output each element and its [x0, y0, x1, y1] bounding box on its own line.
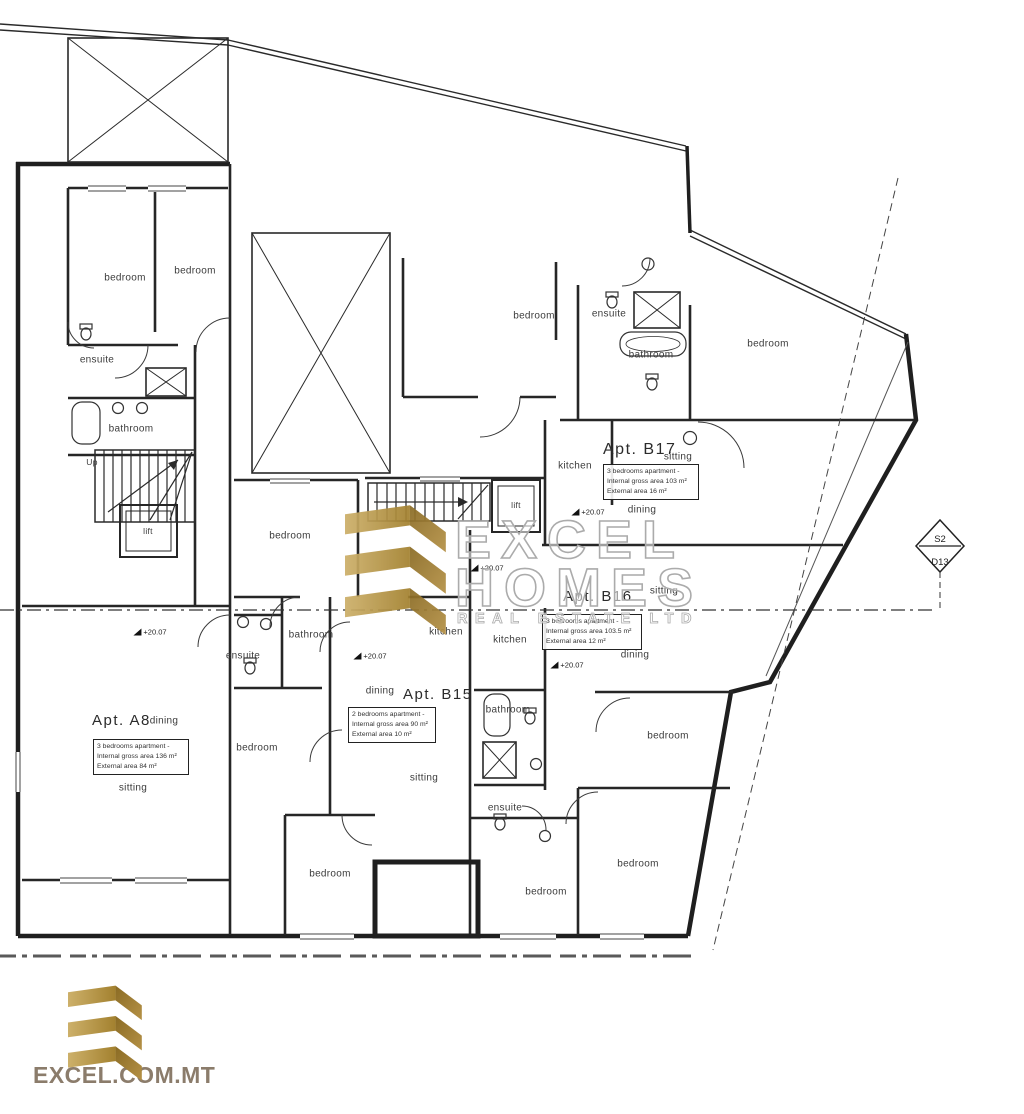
- level-marker: +20.07: [133, 628, 166, 637]
- room-label-dining: dining: [366, 686, 395, 697]
- apartment-title-b17: Apt. B17: [603, 441, 676, 459]
- room-label-ensuite: ensuite: [80, 355, 114, 366]
- info-line: External area 12 m²: [546, 637, 638, 647]
- info-line: 3 bedrooms apartment -: [97, 742, 185, 752]
- info-line: External area 84 m²: [97, 762, 185, 772]
- room-label-bathroom: bathroom: [109, 424, 154, 435]
- room-label-bedroom: bedroom: [513, 311, 555, 322]
- level-marker: +20.07: [550, 661, 583, 670]
- info-line: Internal gross area 136 m²: [97, 752, 185, 762]
- level-flag-icon: [470, 565, 478, 572]
- room-label-kitchen: kitchen: [493, 635, 527, 646]
- room-label-ensuite: ensuite: [488, 803, 522, 814]
- level-value: +20.07: [143, 628, 166, 637]
- room-label-bedroom: bedroom: [617, 859, 659, 870]
- info-line: Internal gross area 90 m²: [352, 720, 432, 730]
- apartment-title-a8: Apt. A8: [92, 712, 151, 729]
- website-link[interactable]: EXCEL.COM.MT: [33, 1062, 215, 1089]
- info-line: 2 bedrooms apartment -: [352, 710, 432, 720]
- room-label-bedroom: bedroom: [525, 887, 567, 898]
- apartment-title-b16: Apt. B16: [563, 588, 633, 605]
- room-label-sitting: sitting: [650, 586, 678, 597]
- room-label-lift: lift: [511, 500, 521, 510]
- room-label-bathroom: bathroom: [629, 350, 674, 361]
- room-label-bedroom: bedroom: [647, 731, 689, 742]
- apartment-info-box-b17: 3 bedrooms apartment - Internal gross ar…: [603, 464, 699, 500]
- room-label-bedroom: bedroom: [236, 743, 278, 754]
- floor-plan-page: S2 D13 bedroom bedroom ensuite bathroom …: [0, 0, 1024, 1114]
- apartment-title-b15: Apt. B15: [403, 686, 473, 703]
- info-line: Internal gross area 103.5 m²: [546, 627, 638, 637]
- info-line: External area 16 m²: [607, 487, 695, 497]
- level-marker: +20.07: [571, 508, 604, 517]
- stairs-up-label: Up: [86, 457, 97, 467]
- room-label-bedroom: bedroom: [174, 266, 216, 277]
- level-value: +20.07: [480, 564, 503, 573]
- room-label-bathroom: bathroom: [289, 630, 334, 641]
- level-marker: +20.07: [470, 564, 503, 573]
- level-flag-icon: [353, 653, 361, 660]
- level-value: +20.07: [581, 508, 604, 517]
- info-line: Internal gross area 103 m²: [607, 477, 695, 487]
- room-label-bedroom: bedroom: [309, 869, 351, 880]
- level-flag-icon: [133, 629, 141, 636]
- room-label-dining: dining: [150, 716, 179, 727]
- room-label-lift: lift: [143, 526, 153, 536]
- room-label-ensuite: ensuite: [592, 309, 626, 320]
- room-label-sitting: sitting: [410, 773, 438, 784]
- level-marker: +20.07: [353, 652, 386, 661]
- room-label-kitchen: kitchen: [429, 627, 463, 638]
- apartment-info-box-b15: 2 bedrooms apartment - Internal gross ar…: [348, 707, 436, 743]
- room-label-dining: dining: [628, 505, 657, 516]
- room-label-kitchen: kitchen: [558, 461, 592, 472]
- plan-labels: bedroom bedroom ensuite bathroom Up lift…: [0, 0, 1024, 1114]
- info-line: 3 bedrooms apartment -: [607, 467, 695, 477]
- room-label-sitting: sitting: [119, 783, 147, 794]
- apartment-info-box-b16: 3 bedrooms apartment - Internal gross ar…: [542, 614, 642, 650]
- room-label-ensuite: ensuite: [226, 651, 260, 662]
- info-line: 3 bedrooms apartment -: [546, 617, 638, 627]
- info-line: External area 10 m²: [352, 730, 432, 740]
- room-label-bedroom: bedroom: [269, 531, 311, 542]
- level-flag-icon: [550, 662, 558, 669]
- level-flag-icon: [571, 509, 579, 516]
- level-value: +20.07: [363, 652, 386, 661]
- level-value: +20.07: [560, 661, 583, 670]
- room-label-bathroom: bathroom: [486, 705, 531, 716]
- apartment-info-box-a8: 3 bedrooms apartment - Internal gross ar…: [93, 739, 189, 775]
- room-label-dining: dining: [621, 650, 650, 661]
- room-label-bedroom: bedroom: [747, 339, 789, 350]
- room-label-bedroom: bedroom: [104, 273, 146, 284]
